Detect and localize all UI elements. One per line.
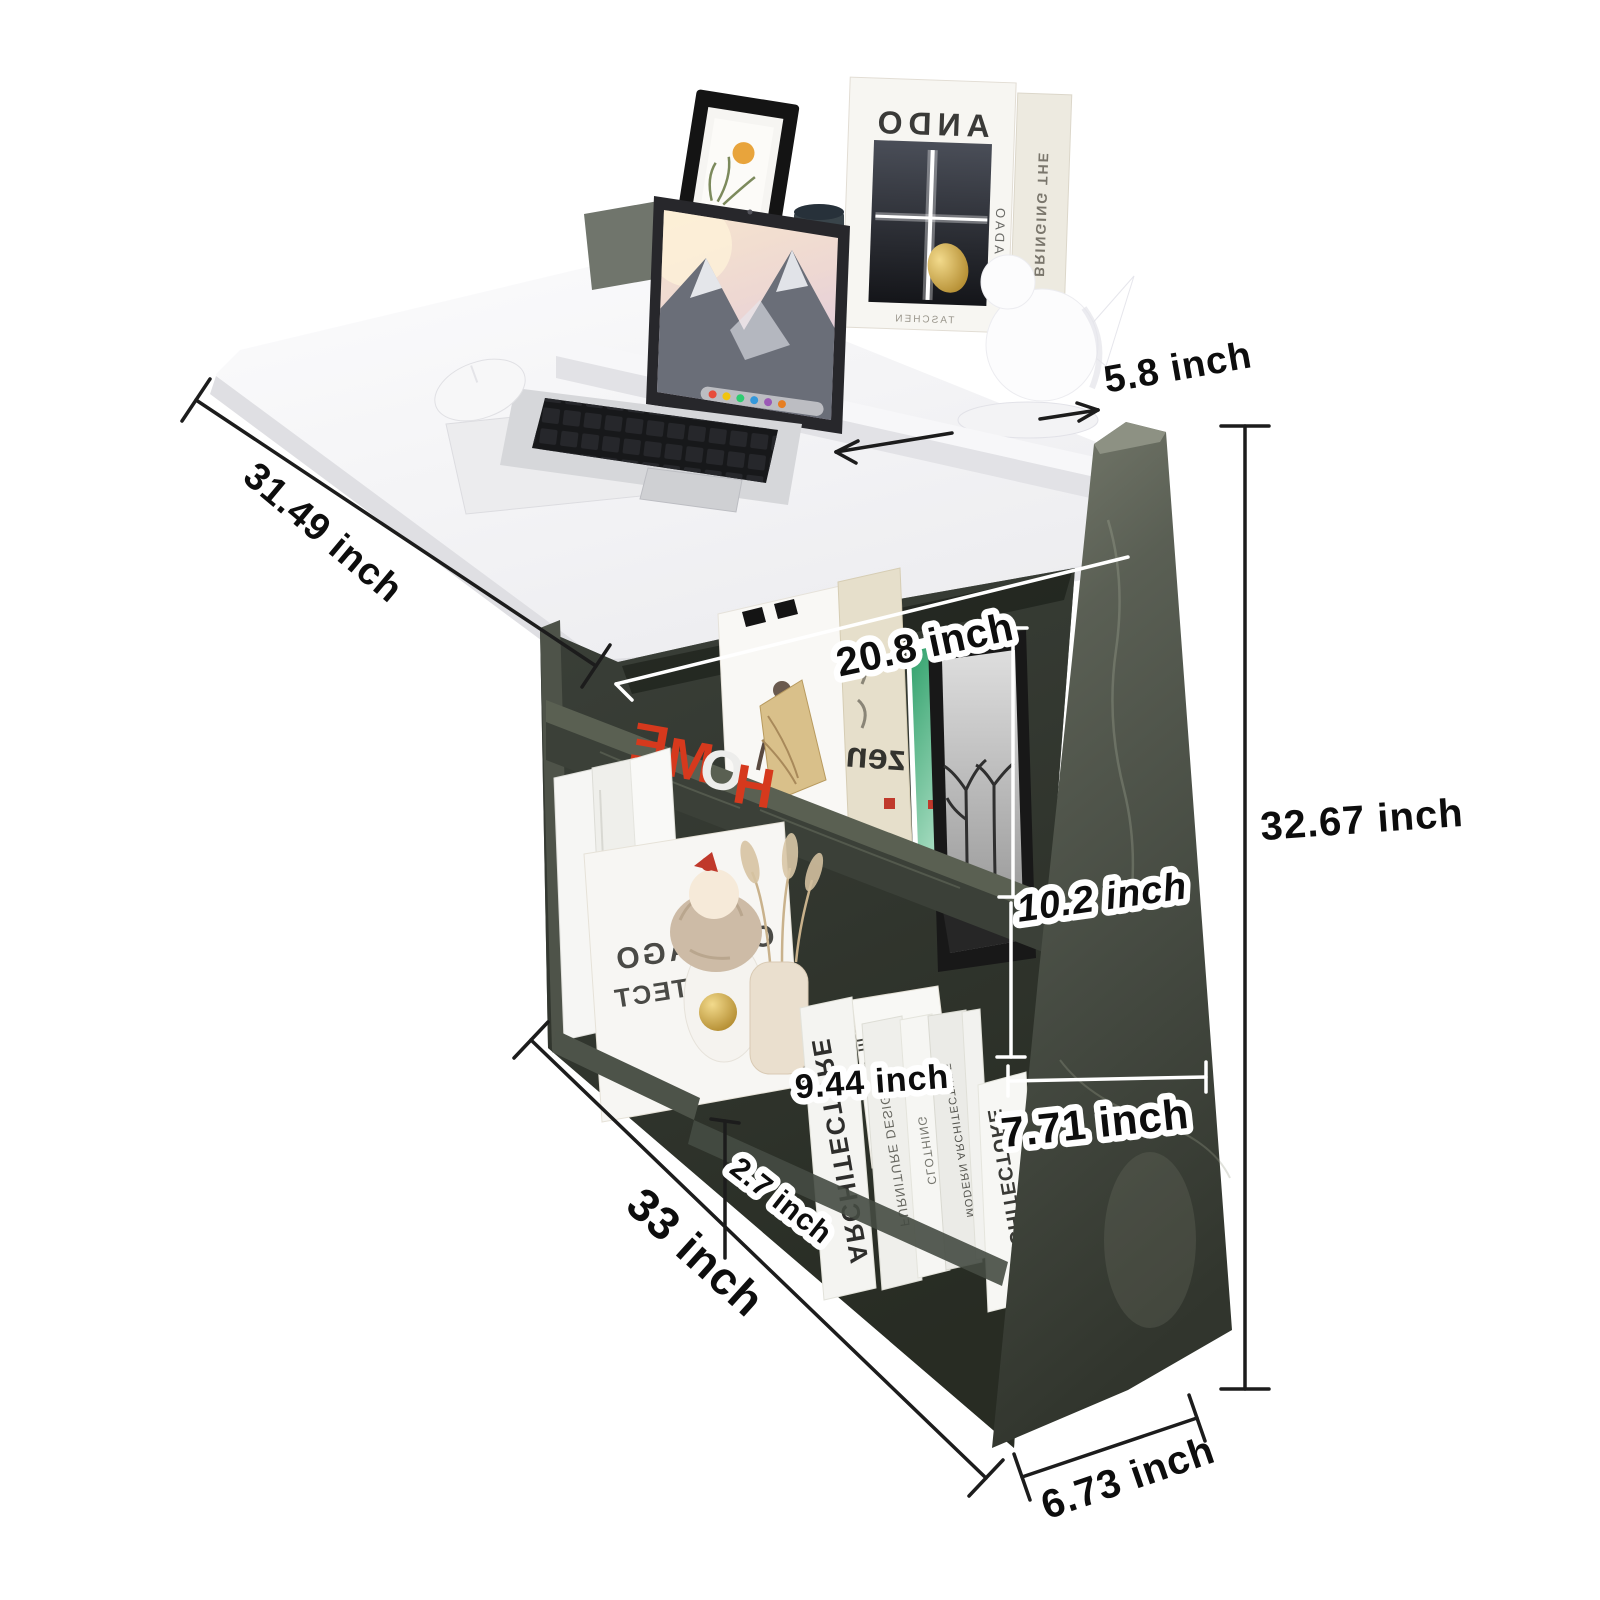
book-ando-publisher: TASCHEN [893,313,954,326]
vase-body [750,962,808,1074]
dim-label-overall-height: 32.67 inch [1259,791,1465,849]
zen-book-title: zen [845,733,908,778]
doll-gold-ball [699,993,737,1031]
dim-label-shelf-depth: 5.8 inch [1101,334,1256,401]
laptop-camera [748,210,753,215]
bookshelf-cabinet: zen E M O H [540,568,1075,1448]
book-ando-title: ANDO [871,104,990,144]
product-dimension-diagram: ANDO TADAO TASCHEN BRINGING THE [0,0,1600,1600]
doll-head [689,869,739,919]
dim-line-overall-height [1221,426,1269,1389]
